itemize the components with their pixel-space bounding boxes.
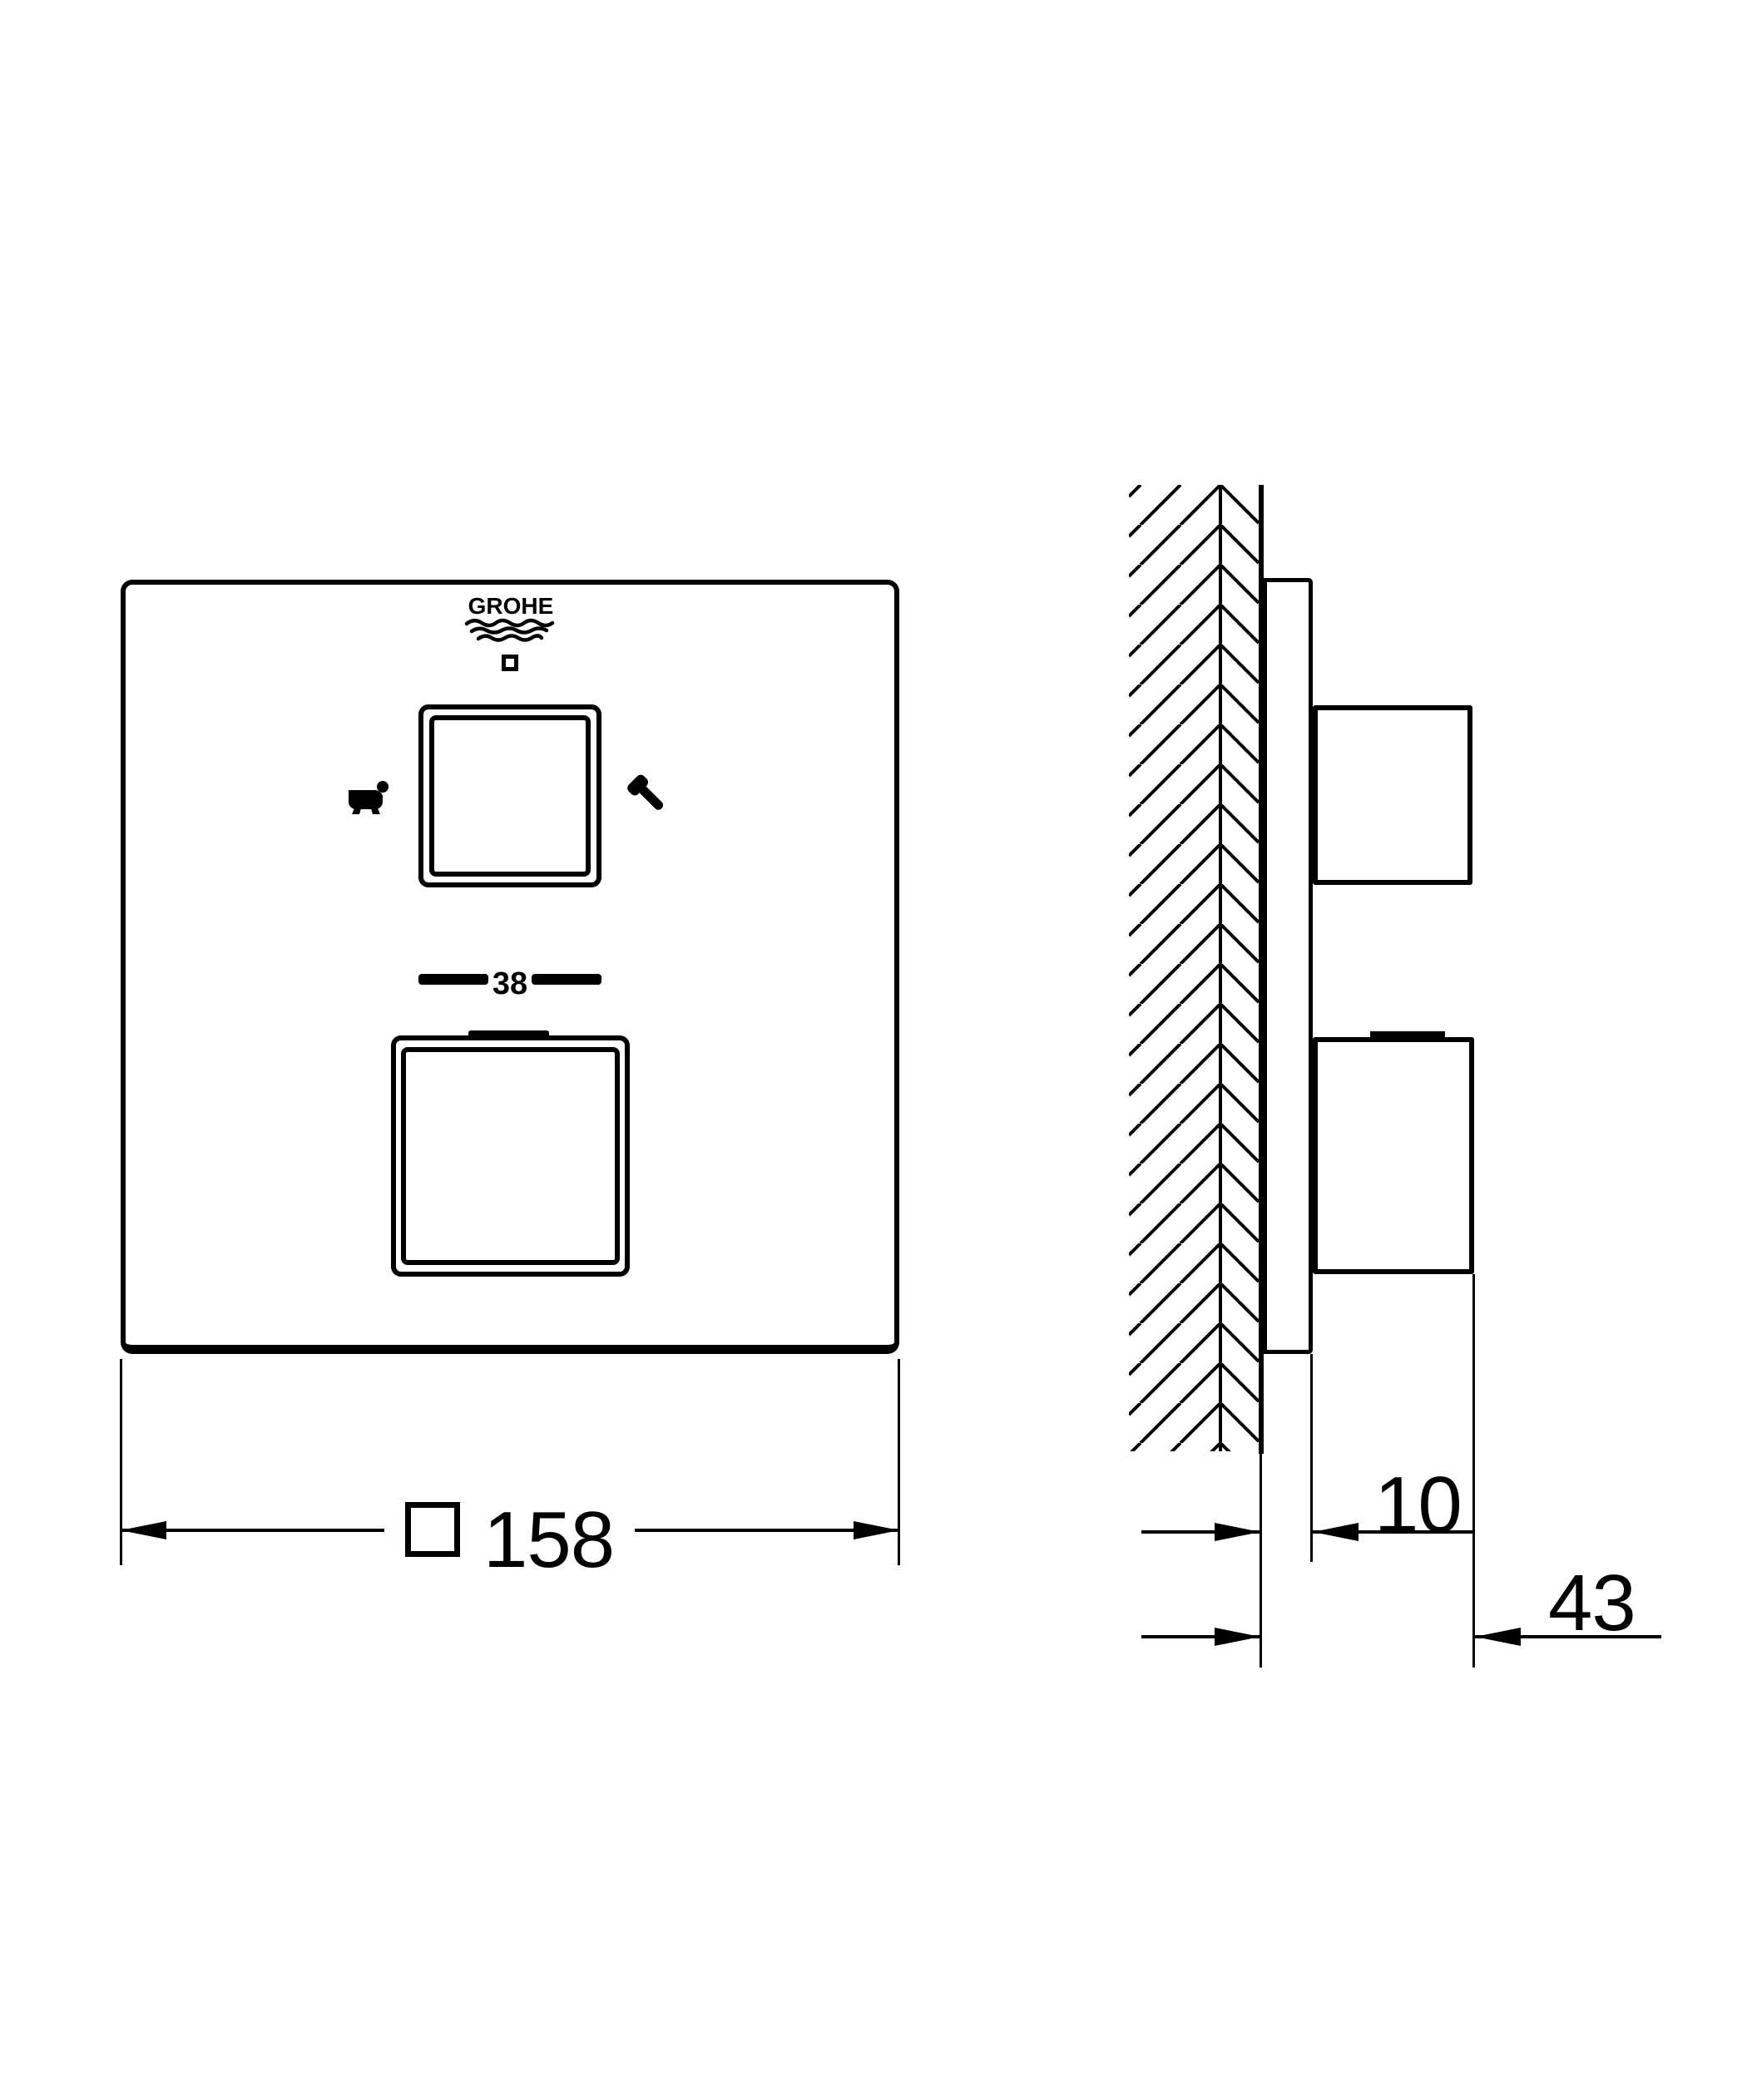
technical-drawing: GROHE 38 158 [0, 0, 1752, 2100]
width-arrowhead-left [121, 1521, 166, 1539]
width-dim-value: 158 [483, 1500, 614, 1580]
width-arrowhead-right [854, 1521, 899, 1539]
grohe-waves-icon [465, 619, 555, 645]
handshower-icon [630, 776, 670, 816]
temp-scale-right-bar [532, 974, 601, 985]
temp-scale-value: 38 [490, 968, 530, 1000]
plate-depth-value: 10 [1374, 1465, 1462, 1545]
total-depth-value: 43 [1548, 1564, 1636, 1643]
diverter-knob-inner [429, 715, 591, 877]
bathtub-icon [347, 779, 390, 814]
square-marker-icon [502, 655, 518, 671]
knob-face-ext-line [1472, 1274, 1475, 1668]
depth43-arrowhead-left [1215, 1628, 1260, 1646]
diverter-knob-side-profile [1313, 705, 1472, 885]
grohe-logo-text: GROHE [453, 593, 569, 620]
thermostat-knob-inner [401, 1047, 620, 1265]
thermostat-knob-side-profile [1313, 1037, 1474, 1274]
depth10-arrowhead-left [1215, 1523, 1260, 1541]
temp-scale-left-bar [418, 974, 488, 985]
wall-hatch-pattern [1129, 485, 1259, 1451]
faceplate-side-profile [1263, 578, 1313, 1354]
width-square-symbol-icon [405, 1502, 460, 1557]
